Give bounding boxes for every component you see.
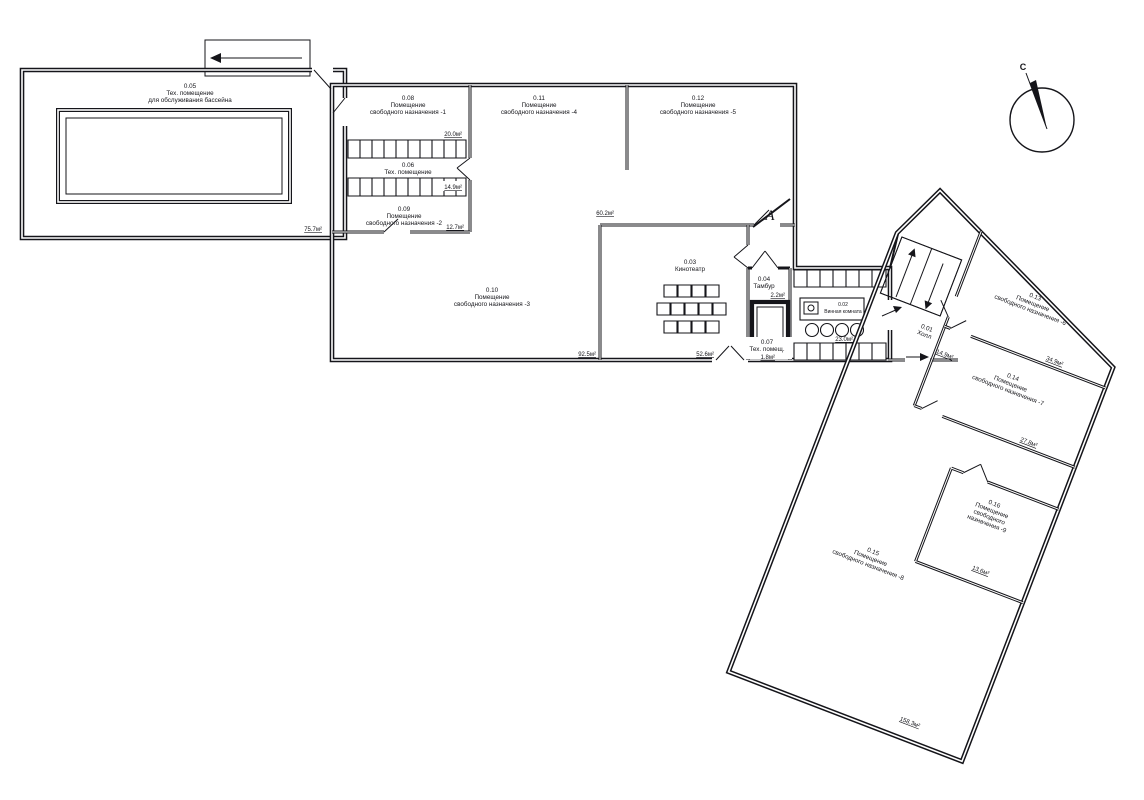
room-id: 0.10 [486,287,499,294]
stair-arrow-up [908,247,918,257]
room-name: Помещение [522,102,557,109]
compass: С [1010,62,1074,152]
room-name: свободного назначения -1 [370,108,447,116]
entrance-arrow [920,353,929,361]
room-name: Винная комната [824,309,862,315]
room-area: 23.0м² [835,337,853,343]
room-id: 0.08 [402,95,415,102]
stair-direction-arrow [210,53,221,63]
room-name: свободного назначения -5 [660,108,737,116]
room-id: 0.12 [692,95,705,102]
room-area: 92.5м² [578,352,596,358]
room-id: 0.11 [533,95,545,102]
compass-needle [1030,80,1047,129]
wing-partitions [850,226,1142,602]
cinema-seats [657,285,726,333]
north-label: С [1020,62,1027,72]
compass-circle [1010,88,1074,152]
room-area: 14.9м² [444,185,462,191]
room-area: 60.2м² [596,211,614,217]
room-id: 0.09 [398,206,411,213]
floor-plan-canvas: 0.01 Холл 14.9м² 0.13 Помещение свободно… [0,0,1144,800]
room-id: 0.06 [402,162,415,169]
room-labels: 0.05 Тех. помещение для обслуживания бас… [148,83,862,361]
room-area: 12.7м² [446,225,464,231]
room-area: 2.2м² [771,293,785,299]
room-name: Помещение [681,102,716,109]
room-name: Кинотеатр [675,266,706,273]
compass-needle-line [1026,73,1047,129]
floor-plan-drawing: 0.01 Холл 14.9м² 0.13 Помещение свободно… [0,0,1144,800]
room-area: 158.3м² [899,716,921,729]
room-area: 1.8м² [761,355,775,361]
room-id: 0.05 [184,83,197,90]
room-name: Помещение [391,102,426,109]
pool [58,110,290,202]
room-area: 52.6м² [696,352,714,358]
room-name: Помещение [475,294,510,301]
section-marker: А [753,199,790,227]
room-name: свободного назначения -2 [366,219,443,227]
room-id: 0.04 [758,276,771,283]
room-area: 20.0м² [444,132,462,138]
room-id: 0.07 [761,339,774,346]
section-marker-label: А [764,208,775,224]
room-area: 75.7м² [304,227,322,233]
room-name: Помещение [387,213,422,220]
wine-room-furniture [794,270,886,360]
bar-stool [836,324,849,337]
room-name: Тамбур [753,282,775,290]
room-name: свободного назначения -4 [501,108,578,116]
room-name: Тех. помещение [384,169,432,176]
room-name: свободного назначения -3 [454,300,531,308]
room-area: 13.6м² [971,565,990,577]
room-name: Тех. помещение [166,90,214,97]
room-id: 0.03 [684,259,697,266]
entry-arrow-head [893,306,902,313]
room-id: 0.02 [838,302,848,308]
room-name: Тех. помещ. [749,346,784,353]
bar-stool [821,324,834,337]
bar-stool [806,324,819,337]
room-name: для обслуживания бассейна [148,96,232,104]
